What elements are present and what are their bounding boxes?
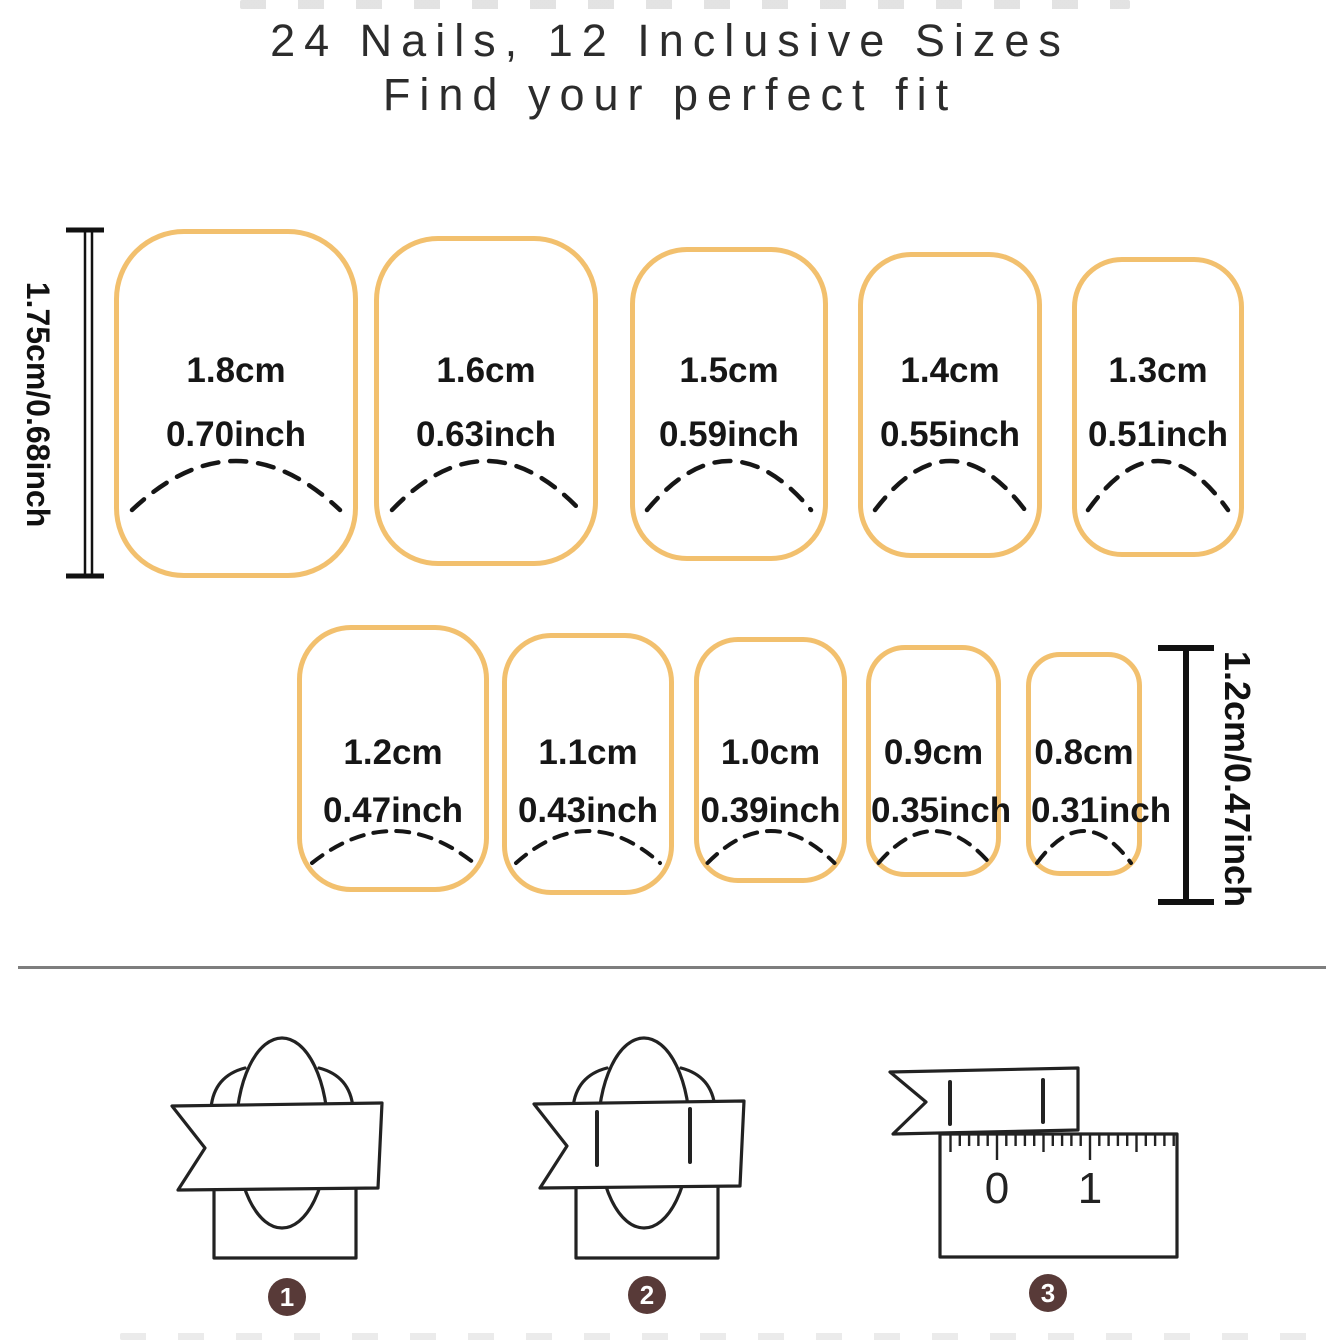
cuticle-dashed-arc [872, 809, 995, 869]
nail-outline-1-8cm: 1.8cm 0.70inch [114, 229, 358, 578]
nail-size-chart-page: 24 Nails, 12 Inclusive Sizes Find your p… [0, 0, 1340, 1340]
step3-tape-on-ruler-drawing: 0 1 [880, 1050, 1190, 1270]
ruler-label-0: 0 [985, 1164, 1009, 1213]
nail-outline-1-1cm: 1.1cm 0.43inch [502, 633, 674, 895]
cuticle-dashed-arc [384, 440, 588, 520]
nail-outline-1-2cm: 1.2cm 0.47inch [297, 625, 489, 892]
nail-size-cm: 1.0cm [699, 724, 842, 782]
cuticle-dashed-arc [701, 809, 840, 869]
title-block: 24 Nails, 12 Inclusive Sizes Find your p… [0, 16, 1340, 120]
cuticle-dashed-arc [124, 440, 348, 520]
clipped-text-top [240, 0, 1130, 9]
nail-size-cm: 1.6cm [379, 339, 593, 403]
nail-size-cm: 1.2cm [302, 724, 484, 782]
ruler-label-1: 1 [1078, 1164, 1102, 1213]
nail-outline-1-4cm: 1.4cm 0.55inch [858, 252, 1042, 558]
nail-outline-0-9cm: 0.9cm 0.35inch [866, 645, 1001, 877]
step2-number-badge: 2 [628, 1276, 666, 1314]
nail-outline-1-0cm: 1.0cm 0.39inch [694, 637, 847, 883]
step1-finger-tape-drawing [140, 1028, 430, 1273]
nail-outline-1-6cm: 1.6cm 0.63inch [374, 236, 598, 566]
nail-outline-0-8cm: 0.8cm 0.31inch [1026, 652, 1142, 876]
nail-size-cm: 0.9cm [871, 724, 996, 782]
nail-size-cm: 1.8cm [119, 339, 353, 403]
clipped-text-bottom [120, 1333, 1330, 1340]
nail-outline-1-3cm: 1.3cm 0.51inch [1072, 257, 1244, 557]
title-line-1: 24 Nails, 12 Inclusive Sizes [0, 16, 1340, 66]
step3-number-badge: 3 [1029, 1274, 1067, 1312]
height-label-row1: 1.75cm/0.68inch [8, 228, 68, 580]
nail-size-cm: 1.3cm [1077, 339, 1239, 403]
cuticle-dashed-arc [867, 440, 1033, 520]
nail-outline-1-5cm: 1.5cm 0.59inch [630, 247, 828, 561]
cuticle-dashed-arc [1080, 440, 1236, 520]
cuticle-dashed-arc [639, 440, 819, 520]
cuticle-dashed-arc [510, 809, 666, 869]
cuticle-dashed-arc [1031, 809, 1137, 869]
step1-number-badge: 1 [268, 1278, 306, 1316]
nail-size-cm: 1.1cm [507, 724, 669, 782]
nail-size-cm: 1.4cm [863, 339, 1037, 403]
nail-size-cm: 1.5cm [635, 339, 823, 403]
title-line-2: Find your perfect fit [0, 70, 1340, 120]
section-divider [18, 966, 1326, 969]
step2-finger-marked-tape-drawing [500, 1028, 790, 1273]
height-label-row2: 1.2cm/0.47inch [1205, 634, 1269, 924]
nail-size-cm: 0.8cm [1031, 724, 1137, 782]
cuticle-dashed-arc [306, 809, 480, 869]
